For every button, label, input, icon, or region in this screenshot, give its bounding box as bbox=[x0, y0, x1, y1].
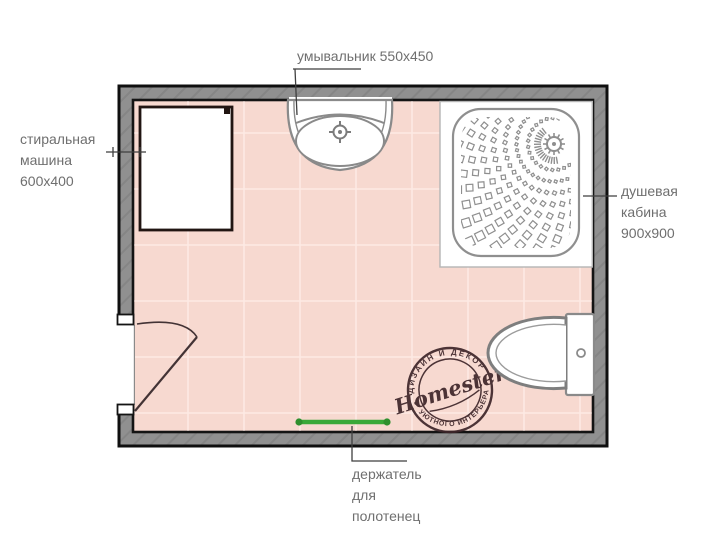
shower-cabin bbox=[440, 102, 592, 268]
towel-holder-label-line1: держатель bbox=[352, 464, 422, 485]
washing-machine-label-line1: стиральная bbox=[20, 129, 95, 150]
washbasin-label-text: умывальник 550x450 bbox=[297, 46, 433, 67]
towel-holder-label-line2: для bbox=[352, 485, 422, 506]
door-jamb-top bbox=[118, 315, 134, 325]
door-jamb-bottom bbox=[118, 405, 134, 415]
shower-label-line3: 900x900 bbox=[621, 223, 678, 244]
washing-machine-label-line2: машина bbox=[20, 150, 95, 171]
shower-label: душевая кабина 900x900 bbox=[621, 181, 678, 244]
towel-holder-label-line3: полотенец bbox=[352, 506, 422, 527]
toilet-flush-button bbox=[577, 349, 585, 357]
shower-label-line1: душевая bbox=[621, 181, 678, 202]
washing-machine bbox=[140, 107, 232, 230]
floor-plan-drawing: ДИЗАЙН И ДЕКОР УЮТНОГО ИНТЕРЬЕРА Homeste… bbox=[0, 0, 705, 542]
shower-label-line2: кабина bbox=[621, 202, 678, 223]
washing-machine-label-line3: 600x400 bbox=[20, 171, 95, 192]
washbasin-label: умывальник 550x450 bbox=[297, 46, 433, 67]
towel-holder-label: держатель для полотенец bbox=[352, 464, 422, 527]
floor-plan-canvas: ДИЗАЙН И ДЕКОР УЮТНОГО ИНТЕРЬЕРА Homeste… bbox=[0, 0, 705, 542]
washing-machine-label: стиральная машина 600x400 bbox=[20, 129, 95, 192]
